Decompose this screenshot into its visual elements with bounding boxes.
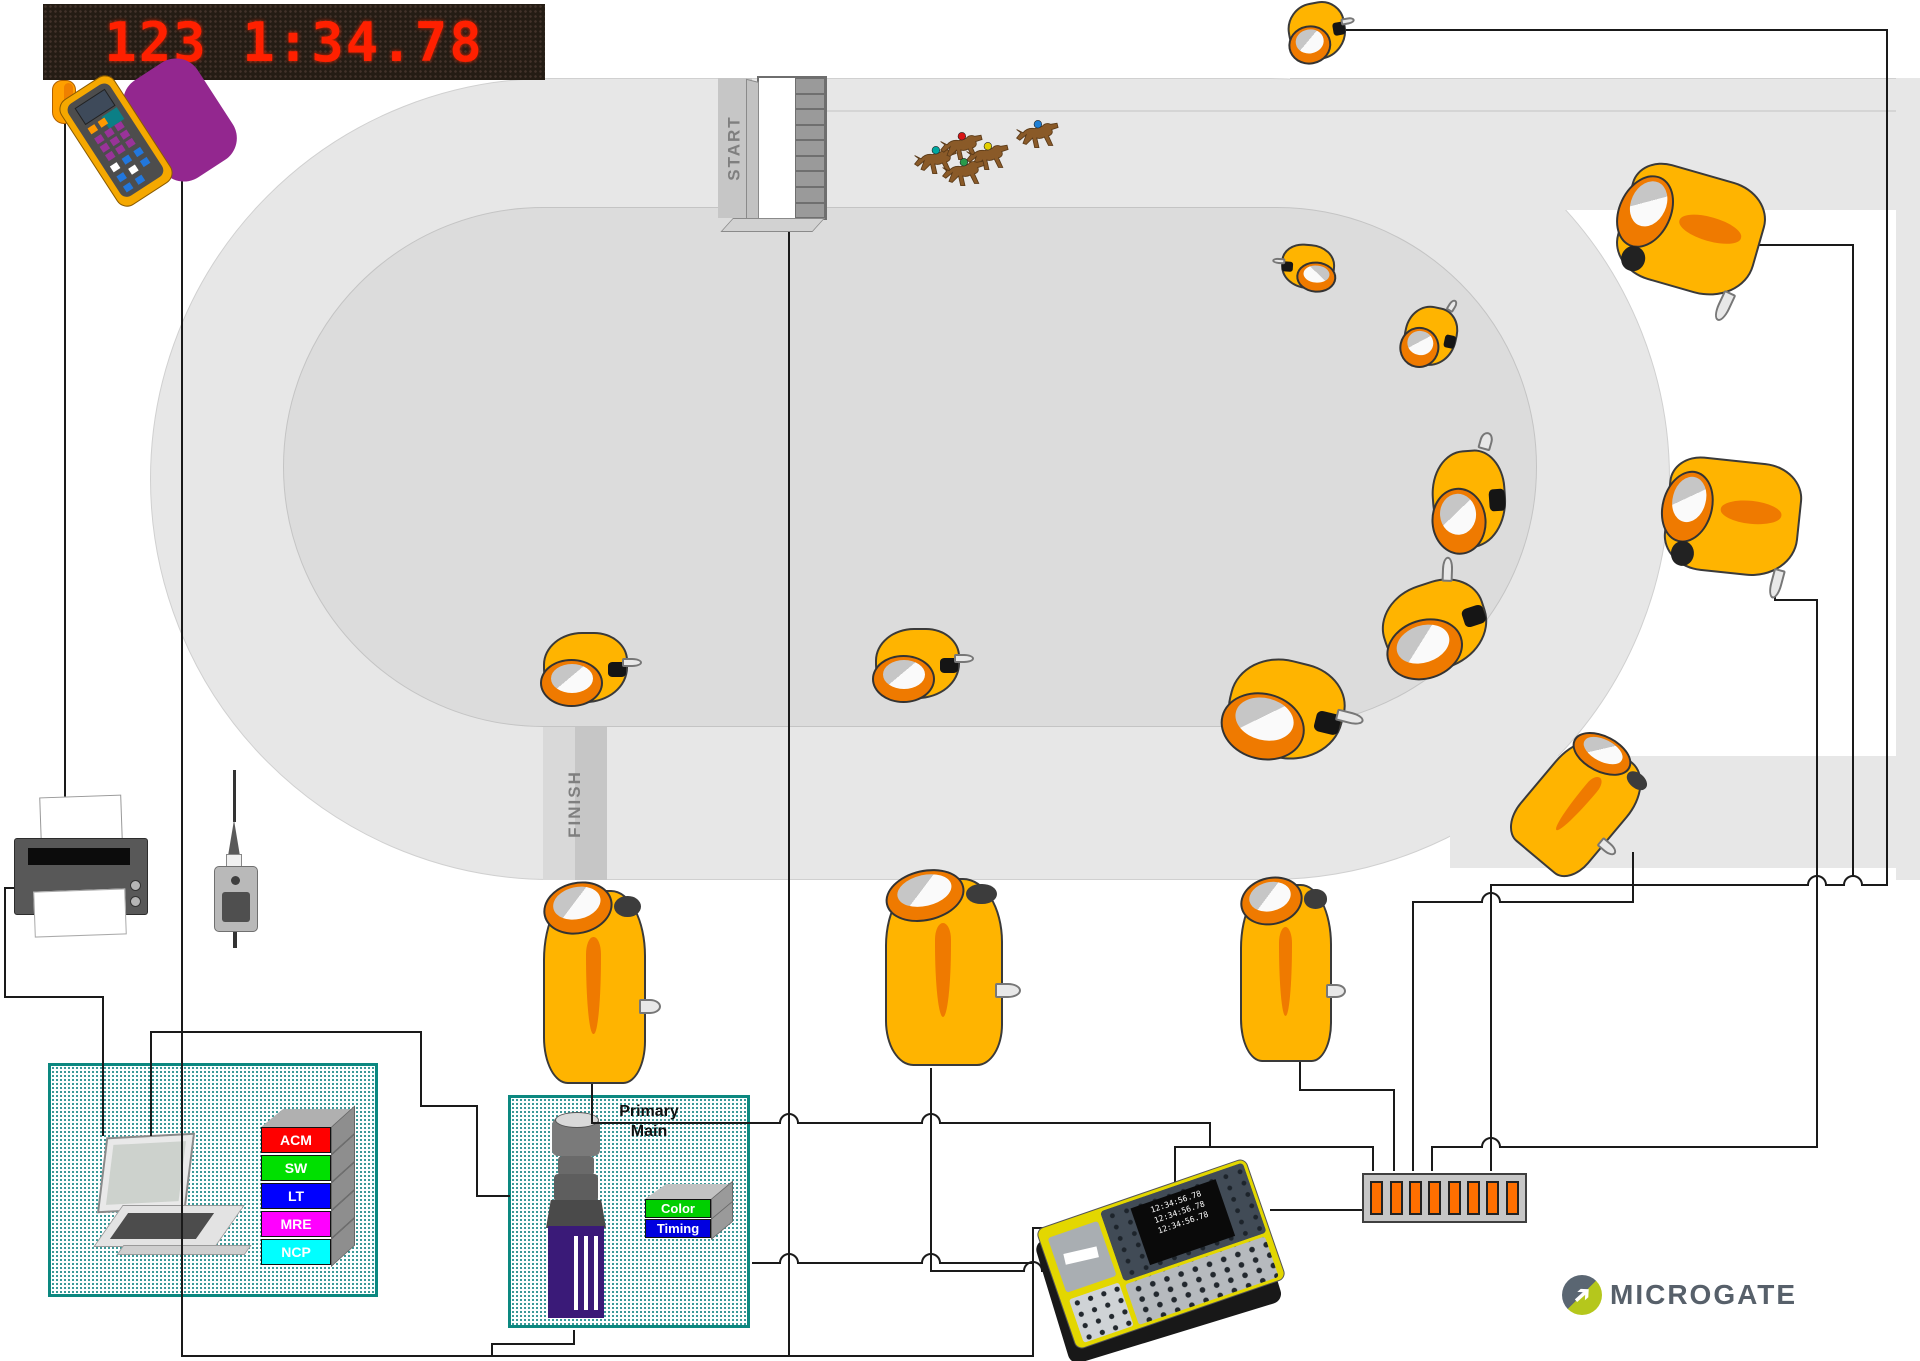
microgate-logo-icon: ➔ <box>1562 1275 1602 1315</box>
connector-slot <box>1506 1181 1519 1215</box>
led-display-board: 123 1:34.78 <box>43 4 545 80</box>
photocell-finish <box>543 632 628 703</box>
distribution-box <box>1362 1173 1527 1223</box>
arrow-icon: ➔ <box>1568 1281 1596 1310</box>
photocell-turn-1 <box>1279 242 1336 291</box>
gate-stalls <box>795 78 825 218</box>
connector-slot <box>1428 1181 1441 1215</box>
photocell-backstretch <box>875 628 960 699</box>
printer-paper <box>33 888 127 937</box>
connector-slot <box>1409 1181 1422 1215</box>
connector-slot <box>1467 1181 1480 1215</box>
photocell-stand-2 <box>885 878 1003 1066</box>
microgate-logo-text: MICROGATE <box>1610 1279 1797 1311</box>
photocell-turn-3 <box>1429 448 1510 551</box>
connector-slot <box>1448 1181 1461 1215</box>
printer <box>14 796 164 940</box>
photocell-stand-1 <box>543 890 646 1084</box>
race-horse-leader <box>1014 120 1066 154</box>
racetrack-timing-diagram: START FINISH ACM SW LT MRE NCP Primary M… <box>0 0 1920 1361</box>
photocell-stand-3 <box>1240 884 1332 1062</box>
connector-slot <box>1370 1181 1383 1215</box>
race-horse <box>940 158 992 192</box>
connector-slot <box>1390 1181 1403 1215</box>
connector-slot <box>1486 1181 1499 1215</box>
photocell-top <box>1283 0 1350 65</box>
radio-antenna <box>214 770 260 966</box>
start-gate <box>757 76 827 220</box>
photocell-camera-lower <box>1660 453 1805 580</box>
